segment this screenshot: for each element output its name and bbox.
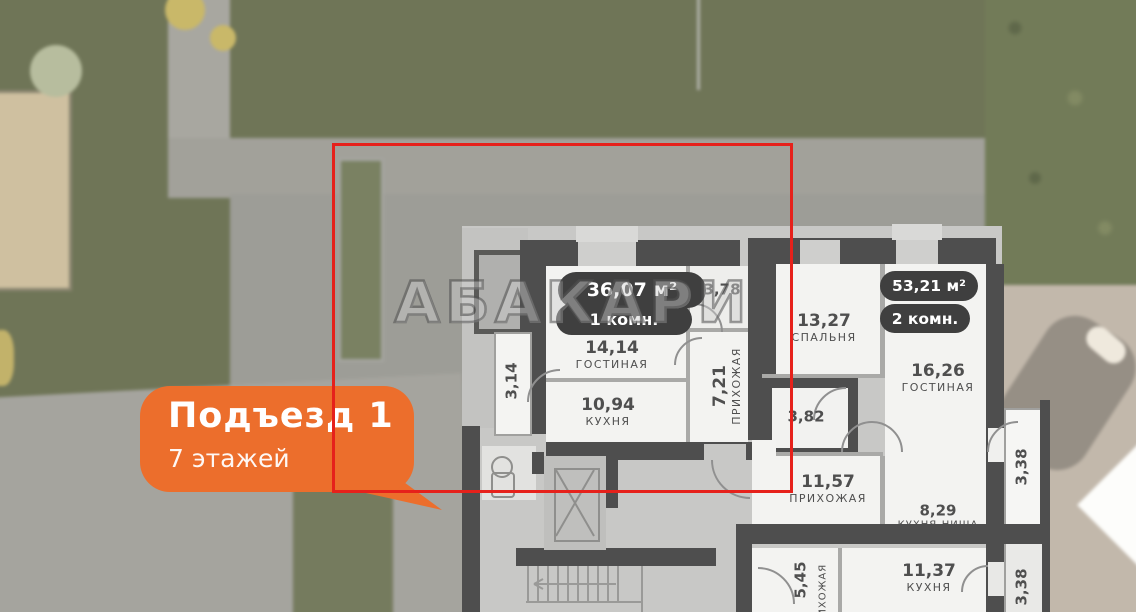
label-hall2: 11,57 ПРИХОЖАЯ xyxy=(789,473,867,505)
balcony3-area: 3,38 xyxy=(1013,568,1030,605)
balcony2-area: 3,38 xyxy=(1013,448,1030,485)
label-hall3-name: ПРИХОЖАЯ xyxy=(817,564,829,612)
entrance-floors: 7 этажей xyxy=(168,444,290,473)
label-bath2: 3,82 xyxy=(787,408,824,425)
hall3-area: 5,45 xyxy=(792,561,809,598)
label-living2: 16,26 ГОСТИНАЯ xyxy=(902,362,975,394)
selection-rectangle xyxy=(332,143,793,493)
bedroom2-name: СПАЛЬНЯ xyxy=(791,331,856,344)
kitchen3-area: 11,37 xyxy=(902,562,956,582)
label-kitchen3: 11,37 КУХНЯ xyxy=(902,562,956,594)
living2-name: ГОСТИНАЯ xyxy=(902,381,975,394)
hall3-name: ПРИХОЖАЯ xyxy=(817,564,829,612)
bath2-area: 3,82 xyxy=(787,408,824,425)
apt2-area-badge[interactable]: 53,21 м² xyxy=(880,271,978,301)
hall2-name: ПРИХОЖАЯ xyxy=(789,492,867,505)
label-bedroom2: 13,27 СПАЛЬНЯ xyxy=(791,312,856,344)
hall2-area: 11,57 xyxy=(789,473,867,493)
label-balcony3: 3,38 xyxy=(1013,568,1030,605)
floorplan-map-view: 36,07 м² 1 комн. 14,14 ГОСТИНАЯ 10,94 КУ… xyxy=(0,0,1136,612)
label-hall3-area: 5,45 xyxy=(792,561,809,598)
bedroom2-area: 13,27 xyxy=(791,312,856,332)
kitchen-niche2-name: КУХНЯ-НИША xyxy=(898,520,979,532)
label-balcony2: 3,38 xyxy=(1013,448,1030,485)
kitchen-niche2-area: 8,29 xyxy=(898,503,979,520)
label-kitchen-niche2: 8,29 КУХНЯ-НИША xyxy=(898,503,979,532)
apt2-rooms-badge[interactable]: 2 комн. xyxy=(880,304,970,333)
kitchen3-name: КУХНЯ xyxy=(902,581,956,594)
living2-area: 16,26 xyxy=(902,362,975,382)
